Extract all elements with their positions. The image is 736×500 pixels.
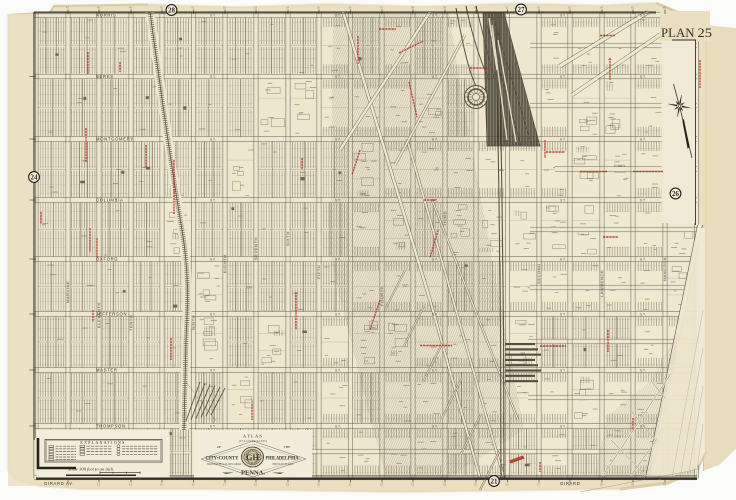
svg-text:PRIVATE PLANS: PRIVATE PLANS xyxy=(273,463,294,466)
svg-text:SECOND: SECOND xyxy=(536,263,541,284)
svg-text:ST.: ST. xyxy=(335,257,342,261)
svg-text:CITY•COUNTY: CITY•COUNTY xyxy=(206,456,239,462)
svg-text:27: 27 xyxy=(518,6,526,14)
svg-text:BERKS: BERKS xyxy=(96,74,114,79)
svg-text:ST.: ST. xyxy=(560,257,567,261)
svg-text:26: 26 xyxy=(672,190,680,198)
svg-text:OF: OF xyxy=(217,445,221,449)
svg-text:SIXTH: SIXTH xyxy=(285,231,290,246)
svg-text:ST.: ST. xyxy=(432,312,439,316)
svg-text:OXFORD: OXFORD xyxy=(96,256,118,261)
svg-text:GH: GH xyxy=(246,453,259,462)
svg-text:THIRD: THIRD xyxy=(442,211,447,226)
svg-text:MASTER: MASTER xyxy=(96,367,118,372)
svg-text:EXPLANATIONS: EXPLANATIONS xyxy=(80,441,125,445)
svg-text:FROM OFFICIAL RECORDS: FROM OFFICIAL RECORDS xyxy=(207,463,242,466)
svg-text:ST.: ST. xyxy=(640,198,647,202)
svg-text:LAWRENCE: LAWRENCE xyxy=(599,270,604,297)
svg-text:ST.: ST. xyxy=(335,198,342,202)
svg-text:THE: THE xyxy=(284,445,291,449)
svg-text:ST.: ST. xyxy=(335,368,342,372)
svg-text:ST.: ST. xyxy=(560,312,567,316)
svg-text:25: 25 xyxy=(698,25,713,40)
svg-text:ST.: ST. xyxy=(432,13,439,17)
svg-text:ST.: ST. xyxy=(210,137,217,141)
svg-text:MARVINE: MARVINE xyxy=(65,281,70,303)
svg-text:ST.: ST. xyxy=(432,424,439,428)
svg-text:ST.: ST. xyxy=(640,312,647,316)
svg-text:ST.: ST. xyxy=(640,257,647,261)
svg-text:PENNA.: PENNA. xyxy=(241,471,266,477)
svg-text:ST.: ST. xyxy=(560,75,567,79)
svg-text:ST.: ST. xyxy=(210,368,217,372)
svg-text:ST.: ST. xyxy=(210,198,217,202)
svg-text:ST.: ST. xyxy=(335,424,342,428)
svg-text:ST.: ST. xyxy=(432,368,439,372)
svg-text:ST.: ST. xyxy=(640,137,647,141)
svg-text:FIFTH: FIFTH xyxy=(316,265,321,279)
svg-text:ST.: ST. xyxy=(640,424,647,428)
svg-text:ST.: ST. xyxy=(560,198,567,202)
svg-text:TENTH: TENTH xyxy=(128,315,133,331)
svg-text:ST.: ST. xyxy=(560,424,567,428)
svg-text:NORRIS: NORRIS xyxy=(96,12,117,17)
svg-text:ST.: ST. xyxy=(210,312,217,316)
svg-text:ST.: ST. xyxy=(432,75,439,79)
svg-text:ST.: ST. xyxy=(432,137,439,141)
svg-text:COLUMBIA: COLUMBIA xyxy=(96,197,123,202)
svg-text:ST.: ST. xyxy=(560,368,567,372)
svg-text:ST.: ST. xyxy=(560,13,567,17)
svg-text:ST.: ST. xyxy=(335,75,342,79)
svg-text:ST.: ST. xyxy=(640,13,647,17)
svg-text:ST.: ST. xyxy=(560,137,567,141)
svg-text:PHILADELPHIA: PHILADELPHIA xyxy=(266,456,299,462)
svg-text:ST.: ST. xyxy=(640,368,647,372)
svg-text:EIGHTH: EIGHTH xyxy=(222,254,227,273)
svg-text:NINTH: NINTH xyxy=(191,315,196,330)
svg-text:(ILLUSTRATED): (ILLUSTRATED) xyxy=(239,439,268,443)
svg-text:ST.: ST. xyxy=(210,13,217,17)
svg-text:ST.: ST. xyxy=(335,312,342,316)
svg-text:ST.: ST. xyxy=(210,424,217,428)
svg-text:ST.: ST. xyxy=(210,257,217,261)
svg-text:ST.: ST. xyxy=(335,137,342,141)
svg-text:ST.: ST. xyxy=(640,75,647,79)
svg-text:PLAN: PLAN xyxy=(661,25,695,40)
svg-text:THOMPSON: THOMPSON xyxy=(96,423,126,428)
svg-text:24: 24 xyxy=(31,173,39,181)
svg-text:GIRARD AV.: GIRARD AV. xyxy=(44,481,74,486)
svg-text:ST.: ST. xyxy=(432,257,439,261)
svg-text:ATLAS: ATLAS xyxy=(243,434,263,439)
svg-text:MONTGOMERY: MONTGOMERY xyxy=(96,136,134,141)
svg-text:28: 28 xyxy=(168,6,176,14)
svg-text:21: 21 xyxy=(491,477,499,485)
svg-text:SEVENTH: SEVENTH xyxy=(253,237,258,260)
svg-text:ST.: ST. xyxy=(210,75,217,79)
svg-text:HANCOCK: HANCOCK xyxy=(662,257,667,281)
svg-text:ST.: ST. xyxy=(335,13,342,17)
svg-text:FOURTH: FOURTH xyxy=(379,286,384,306)
svg-text:ELEVENTH: ELEVENTH xyxy=(96,302,101,328)
